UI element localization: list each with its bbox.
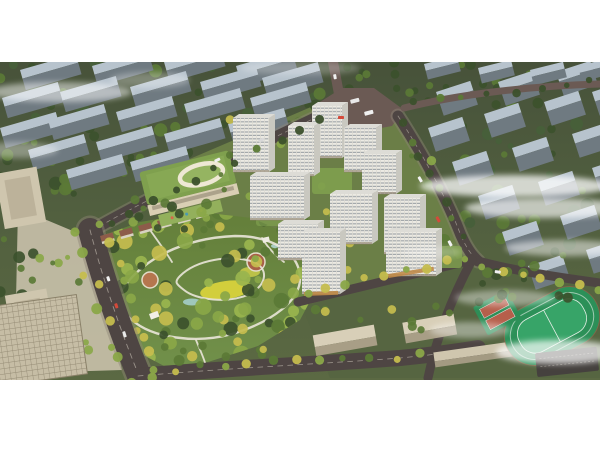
tree — [426, 82, 433, 89]
tree — [262, 278, 275, 291]
tree — [244, 239, 255, 250]
tree — [70, 227, 79, 236]
office-facade-grid — [0, 295, 87, 380]
tree — [586, 77, 592, 83]
tree — [75, 278, 83, 286]
tree — [340, 280, 350, 290]
tree — [59, 183, 71, 195]
tree — [246, 314, 254, 322]
tree — [220, 291, 230, 301]
tree — [35, 254, 44, 263]
tree — [173, 187, 180, 194]
tree — [161, 299, 170, 308]
tree — [501, 151, 507, 157]
tree — [295, 126, 304, 135]
tree — [448, 215, 454, 221]
tree — [221, 187, 226, 192]
tree — [555, 278, 565, 288]
residential-tower — [233, 114, 275, 173]
tree — [1, 236, 7, 242]
tree — [29, 276, 36, 283]
office-block — [0, 295, 87, 380]
tree — [104, 237, 114, 247]
tree — [529, 261, 540, 272]
tree — [278, 136, 286, 144]
tree — [547, 125, 555, 133]
tree — [89, 131, 99, 141]
tree — [96, 221, 103, 228]
tree — [149, 366, 157, 374]
fog-streak — [430, 322, 510, 338]
tree — [399, 118, 407, 126]
tower-side — [304, 172, 310, 220]
tree — [137, 262, 145, 270]
tree — [288, 305, 299, 316]
residential-tower — [362, 150, 402, 195]
aerial-rendering — [0, 62, 600, 380]
tree — [198, 341, 207, 350]
tree — [210, 165, 216, 171]
tree — [253, 145, 261, 153]
tree — [17, 265, 24, 272]
tree — [387, 305, 396, 314]
tree — [91, 303, 102, 314]
vehicle — [338, 116, 344, 119]
tree — [200, 226, 207, 233]
tree — [181, 225, 188, 232]
tree — [492, 100, 501, 109]
tree — [108, 344, 115, 351]
tree — [425, 169, 433, 177]
tree — [140, 206, 146, 212]
tree — [563, 293, 573, 303]
tree — [159, 282, 173, 296]
tree — [379, 271, 388, 280]
tree — [130, 195, 139, 204]
tree — [254, 276, 261, 283]
tree — [357, 317, 363, 323]
tower-facade — [302, 232, 340, 294]
tree — [192, 177, 201, 186]
tree — [321, 307, 330, 316]
tower-facade — [233, 118, 269, 172]
tree — [71, 190, 77, 196]
tree — [219, 330, 226, 337]
tree — [436, 94, 444, 102]
tower-roof — [302, 228, 346, 232]
tree — [417, 326, 424, 333]
tree — [483, 91, 489, 97]
tree — [206, 221, 214, 229]
tree — [461, 233, 467, 239]
tree — [465, 217, 476, 228]
tree — [117, 260, 125, 268]
tree — [231, 160, 238, 167]
residential-tower — [288, 122, 320, 177]
tree — [237, 324, 247, 334]
tree — [177, 317, 189, 329]
tree — [446, 309, 453, 316]
tree — [260, 346, 267, 353]
tree — [458, 95, 464, 101]
tree — [167, 202, 177, 212]
tree — [159, 311, 173, 325]
tree — [65, 255, 70, 260]
tree — [213, 311, 225, 323]
tower-side — [372, 190, 378, 244]
tree — [226, 151, 234, 159]
tree — [415, 349, 424, 358]
tree — [520, 271, 527, 278]
tree — [95, 280, 103, 288]
tower-roof — [386, 228, 442, 232]
tree — [109, 220, 116, 227]
tree — [218, 172, 223, 177]
tree — [105, 316, 115, 326]
tree — [175, 209, 184, 218]
tree — [144, 346, 154, 356]
tree — [195, 298, 211, 314]
tree — [233, 337, 242, 346]
tree — [305, 290, 313, 298]
tree — [242, 359, 251, 368]
tree — [204, 278, 213, 287]
tree — [355, 74, 363, 82]
tree — [132, 315, 140, 323]
tree — [54, 259, 63, 268]
tree — [290, 274, 300, 284]
tower-roof — [233, 114, 275, 118]
tree — [238, 302, 251, 315]
fog-streak — [110, 72, 190, 88]
tree — [314, 88, 326, 100]
tree — [79, 272, 87, 280]
tree — [403, 266, 410, 273]
fog-streak — [402, 246, 462, 258]
tree — [172, 368, 179, 375]
tree — [159, 330, 168, 339]
tree — [339, 355, 345, 361]
tree — [512, 89, 520, 97]
tree — [496, 216, 509, 229]
residential-tower — [250, 172, 310, 221]
tree — [50, 260, 55, 265]
masterplan-svg — [0, 62, 600, 380]
tree — [196, 361, 203, 368]
tower-roof — [278, 220, 324, 224]
page — [0, 0, 600, 450]
tree — [195, 89, 203, 97]
tree — [414, 152, 423, 161]
tree — [274, 293, 290, 309]
tree — [215, 222, 225, 232]
tree — [536, 126, 545, 135]
tree — [462, 256, 468, 262]
tree — [252, 255, 259, 262]
tree — [478, 263, 485, 270]
tree — [555, 291, 564, 300]
tree — [140, 333, 149, 342]
tower-roof — [344, 124, 382, 128]
tree — [362, 70, 370, 78]
tree — [222, 363, 229, 370]
tree — [260, 247, 270, 257]
tree — [422, 264, 432, 274]
tree — [323, 208, 330, 215]
tree — [575, 280, 585, 290]
tree — [125, 210, 133, 218]
tree — [126, 294, 136, 304]
tower-facade — [362, 154, 396, 194]
tree — [321, 283, 331, 293]
tree — [405, 88, 414, 97]
tree — [442, 197, 452, 207]
tree — [536, 274, 545, 283]
tree — [203, 214, 211, 222]
flower-bed — [142, 272, 158, 288]
tree — [134, 212, 143, 221]
tree — [84, 345, 93, 354]
tower-side — [269, 114, 275, 172]
tower-roof — [312, 102, 348, 106]
tree — [409, 139, 417, 147]
tree — [427, 156, 436, 165]
tree — [315, 115, 324, 124]
tree — [408, 322, 417, 331]
tree — [174, 355, 185, 366]
tree — [154, 224, 162, 232]
tree — [311, 305, 321, 315]
tree — [292, 355, 301, 364]
tree — [409, 153, 414, 158]
tree — [315, 356, 324, 365]
tree — [187, 351, 197, 361]
tree — [76, 157, 85, 166]
tree — [393, 85, 400, 92]
tree — [533, 98, 544, 109]
tree — [518, 260, 526, 268]
tree — [564, 83, 570, 89]
tree — [479, 280, 486, 287]
tree — [161, 343, 169, 351]
tree — [496, 138, 502, 144]
tower-roof — [250, 172, 310, 176]
tree — [365, 354, 373, 362]
tree — [199, 242, 206, 249]
tree — [432, 303, 439, 310]
tower-roof — [330, 190, 378, 194]
tree — [120, 277, 128, 285]
tree — [539, 85, 546, 92]
tree — [391, 70, 400, 79]
tree — [180, 348, 187, 355]
tree — [113, 352, 123, 362]
tree — [288, 288, 299, 299]
fog-streak — [455, 290, 555, 306]
tower-roof — [384, 194, 426, 198]
tree — [410, 98, 417, 105]
tree — [221, 254, 235, 268]
tower-side — [396, 150, 402, 194]
tree — [269, 356, 279, 366]
tree — [570, 118, 583, 131]
tower-side — [314, 122, 320, 176]
tree — [177, 233, 193, 249]
tree — [222, 352, 231, 361]
tree — [235, 271, 250, 286]
tree — [394, 356, 401, 363]
tree — [360, 274, 367, 281]
tower-roof — [362, 150, 402, 154]
tree — [149, 196, 158, 205]
tree — [191, 317, 203, 329]
tree — [13, 251, 25, 263]
tower-facade — [250, 176, 304, 220]
tree — [152, 245, 167, 260]
tree — [77, 247, 88, 258]
